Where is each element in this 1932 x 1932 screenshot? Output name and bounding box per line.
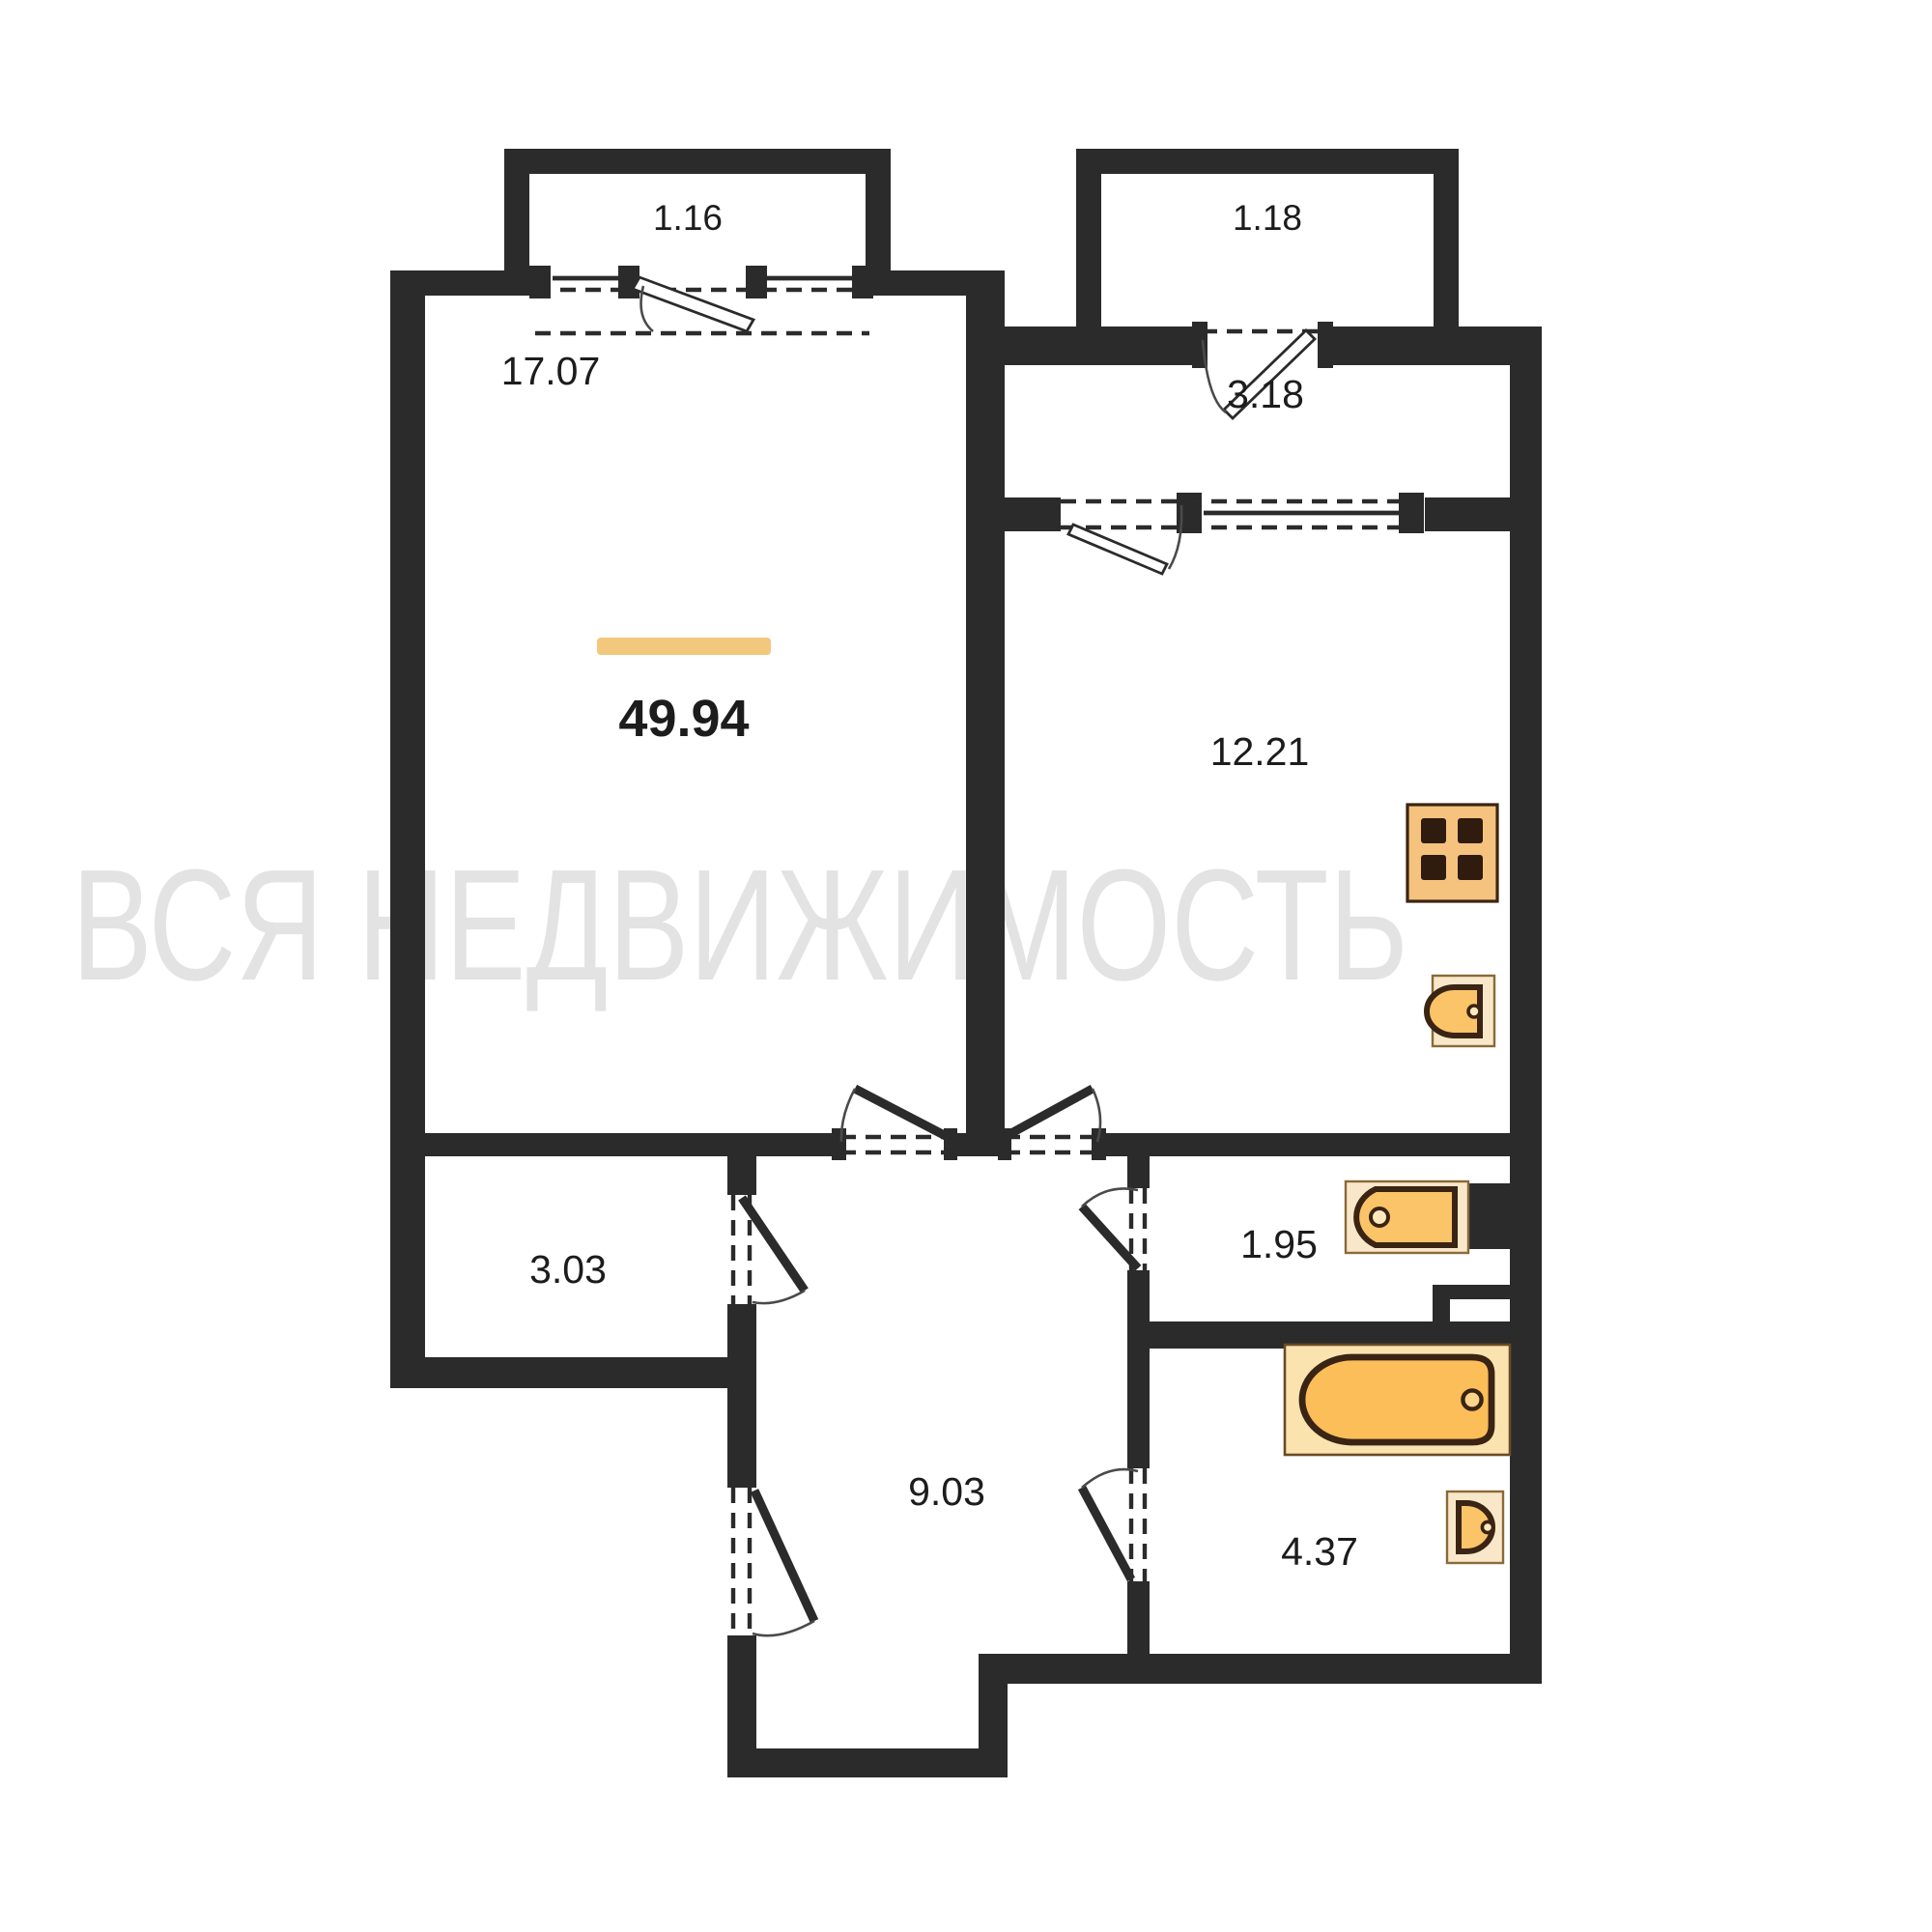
floor-plan-page: ВСЯ НЕДВИЖИМОСТЬ xyxy=(0,0,1932,1932)
watermark-text: ВСЯ НЕДВИЖИМОСТЬ xyxy=(71,837,1408,1013)
door-arc xyxy=(753,1291,805,1303)
door-bathroom xyxy=(1082,1468,1145,1581)
floor-plan-svg: ВСЯ НЕДВИЖИМОСТЬ xyxy=(0,0,1932,1932)
label-kitchen: 12.21 xyxy=(1210,729,1310,774)
door-leaf xyxy=(1003,1089,1093,1138)
label-living-room: 17.07 xyxy=(501,349,601,393)
label-bathroom: 4.37 xyxy=(1281,1529,1358,1574)
door-closet xyxy=(733,1195,805,1304)
wall-hallway-bottom xyxy=(727,1748,1008,1777)
label-vestibule: 3.18 xyxy=(1227,372,1304,416)
wall-top-right-b xyxy=(1323,327,1542,365)
label-hallway: 9.03 xyxy=(908,1469,985,1514)
door-entrance xyxy=(733,1488,814,1635)
bathroom-sink-icon xyxy=(1447,1492,1503,1563)
wall-balcony1-top xyxy=(504,149,891,174)
door-leaf xyxy=(855,1089,950,1138)
total-area-value: 49.94 xyxy=(618,690,749,748)
kitchen-sink-icon xyxy=(1427,976,1494,1046)
door-leaf xyxy=(1068,525,1167,574)
door-leaf xyxy=(1082,1488,1131,1579)
door-leaf xyxy=(633,277,753,331)
door-jamb xyxy=(1318,322,1333,368)
door-leaf xyxy=(754,1491,814,1621)
door-balcony-left xyxy=(633,277,753,331)
wall-wc-left-a xyxy=(1127,1156,1150,1188)
door-vestibule-kitchen xyxy=(1068,505,1181,574)
total-area-accent-line xyxy=(597,638,771,655)
label-balcony-right: 1.18 xyxy=(1233,198,1302,238)
total-area-block: 49.94 xyxy=(597,638,771,748)
wall-balcony1-left xyxy=(504,149,529,280)
wall-balcony2-right xyxy=(1434,149,1459,327)
door-jamb xyxy=(832,1128,846,1160)
wall-divider-living-kitchen xyxy=(966,270,1005,1134)
label-closet: 3.03 xyxy=(529,1247,607,1292)
wall-wc-left-c xyxy=(1127,1581,1150,1654)
door-wc xyxy=(1082,1188,1145,1270)
wall-niche-top xyxy=(1433,1285,1542,1299)
wall-outer-left xyxy=(390,270,425,1388)
stove-icon xyxy=(1407,805,1497,901)
wall-hallway-left-a xyxy=(727,1388,756,1488)
bathtub-icon xyxy=(1285,1345,1510,1455)
label-balcony-left: 1.16 xyxy=(653,198,723,238)
wall-outer-right xyxy=(1510,327,1542,1684)
toilet-tank-shaft xyxy=(1468,1183,1510,1249)
wall-balcony2-left xyxy=(1076,149,1101,327)
wall-balcony2-top xyxy=(1076,149,1459,174)
wall-balcony1-right xyxy=(866,149,891,280)
wall-niche-stub xyxy=(1433,1299,1450,1321)
wall-vestibule-kitchen-a xyxy=(1005,497,1061,531)
door-kitchen xyxy=(1003,1089,1100,1152)
wall-closet-right-a xyxy=(727,1156,756,1195)
label-wc: 1.95 xyxy=(1240,1222,1318,1266)
window-mullion xyxy=(746,266,767,298)
wall-vestibule-kitchen-b xyxy=(1425,497,1510,531)
door-living-room xyxy=(840,1089,952,1152)
window-mullion xyxy=(529,266,551,298)
wall-closet-bottom xyxy=(390,1357,756,1388)
wall-wc-left-b xyxy=(1127,1270,1150,1468)
wall-bottom-right xyxy=(979,1654,1541,1684)
wall-hall-top-a xyxy=(390,1133,840,1156)
wall-hall-top-stub xyxy=(952,1133,1005,1156)
wall-hall-top-b xyxy=(1098,1133,1541,1156)
wall-top-right-a xyxy=(1005,327,1202,365)
window-mullion xyxy=(852,266,873,298)
door-arc xyxy=(753,1621,814,1635)
toilet-icon xyxy=(1346,1181,1468,1253)
